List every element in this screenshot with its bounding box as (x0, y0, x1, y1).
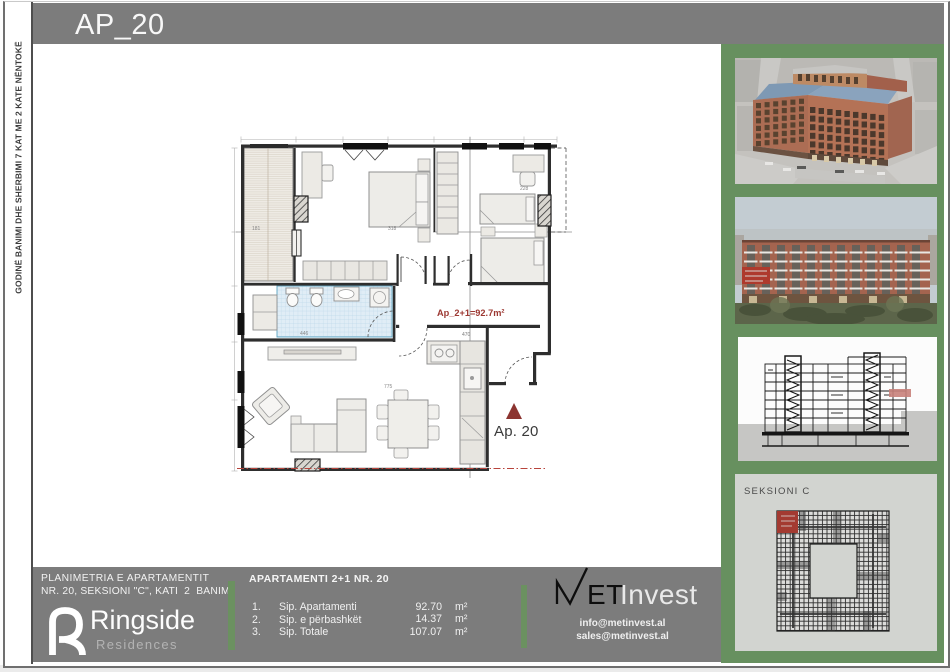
svg-text:Ap. 20: Ap. 20 (494, 423, 539, 440)
svg-text:446: 446 (300, 331, 309, 337)
svg-text:Ap_2+1=92.7m²: Ap_2+1=92.7m² (437, 308, 504, 318)
svg-text:775: 775 (384, 384, 393, 390)
svg-text:228: 228 (520, 186, 529, 192)
svg-text:318: 318 (388, 226, 397, 232)
svg-text:181: 181 (252, 226, 261, 232)
svg-text:470: 470 (462, 332, 471, 338)
